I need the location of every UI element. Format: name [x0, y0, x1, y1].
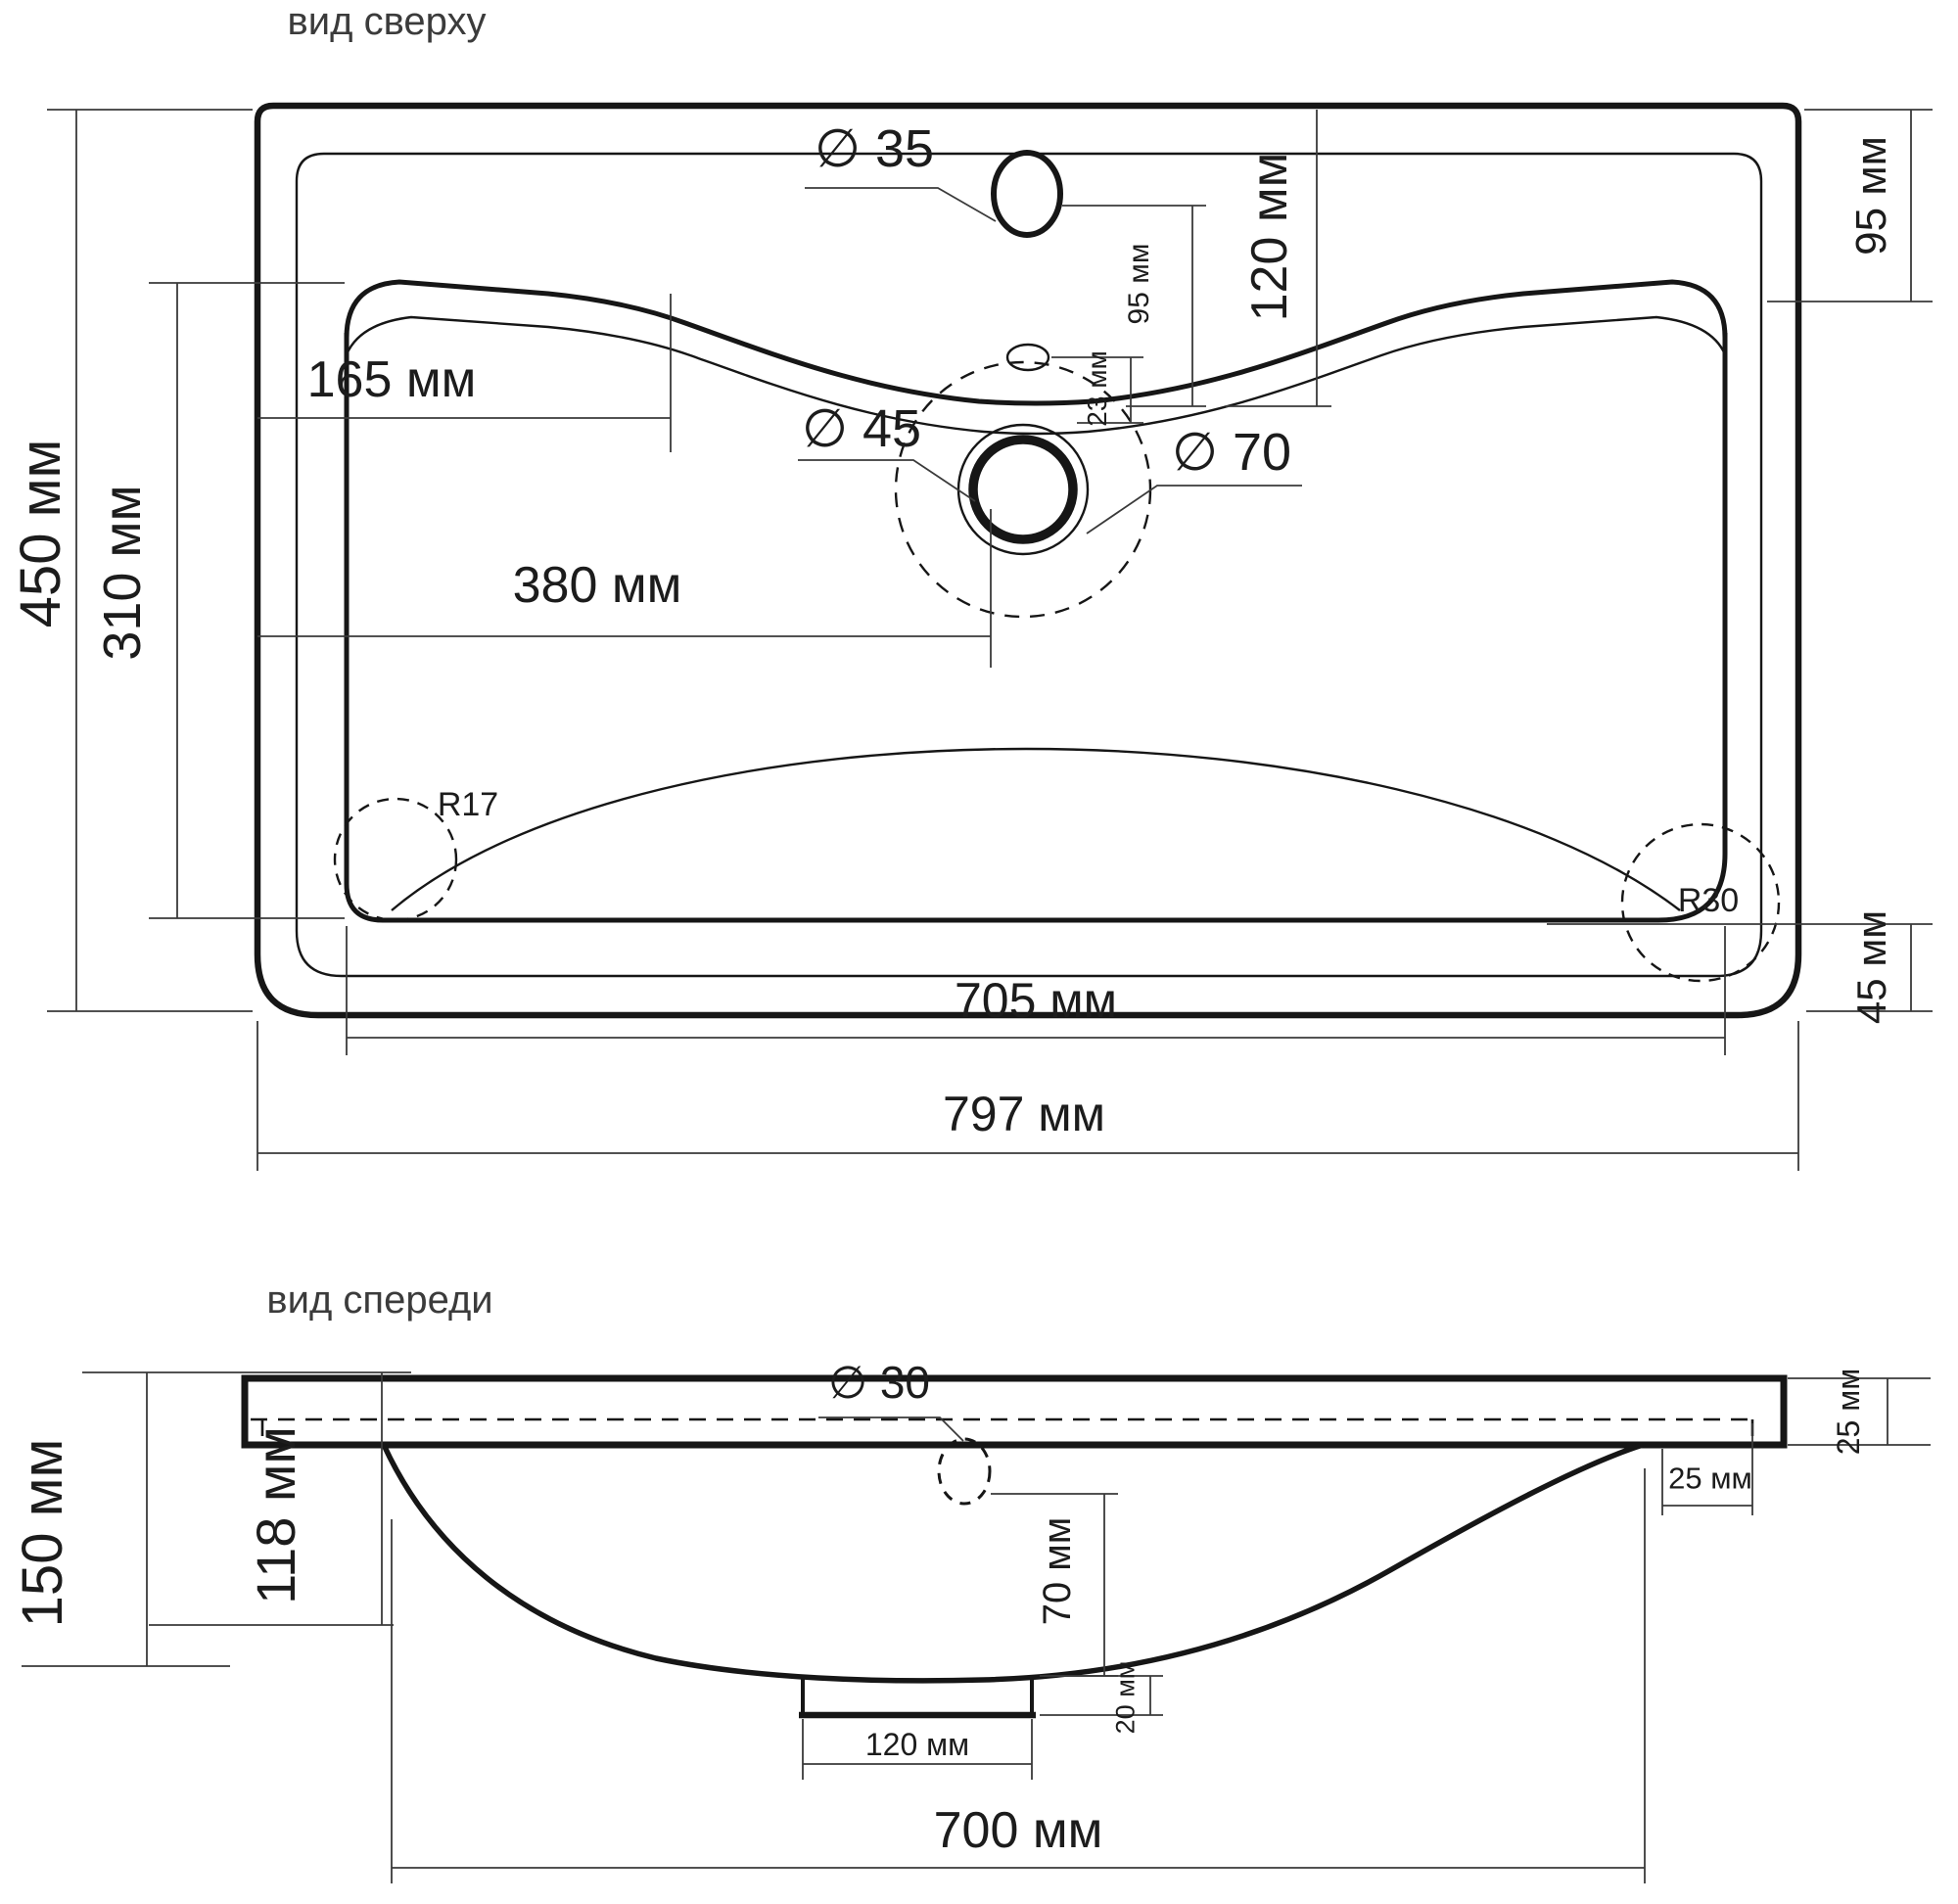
drawing-linework — [0, 0, 1958, 1904]
dim-label-overall-width: 797 мм — [943, 1090, 1105, 1138]
leader-dia45 — [798, 460, 975, 501]
dim-label-faucet-gap: 95 мм — [1125, 244, 1154, 325]
dim-label-right-ledge-depth: 95 мм — [1850, 136, 1893, 255]
dim-150-lines — [22, 1372, 411, 1666]
dim-label-edge-inset: 25 мм — [1668, 1463, 1752, 1494]
dim-label-drain-recess-dia: ∅ 70 — [1172, 426, 1291, 479]
dim-label-deck-depth: 120 мм — [1244, 153, 1295, 322]
dim-20-lines — [1040, 1676, 1163, 1715]
dim-label-overflow-hole-dia: ∅ 30 — [828, 1360, 930, 1405]
dim-label-drain-center-offset: 380 мм — [513, 560, 682, 611]
dim-label-drain-zone-height: 70 мм — [1038, 1517, 1077, 1626]
dim-label-overall-depth: 450 мм — [13, 440, 70, 628]
front-bowl-curve — [384, 1445, 1643, 1681]
front-hidden-dashed-line — [251, 1419, 1756, 1442]
dim-label-bowl-width: 700 мм — [934, 1805, 1103, 1856]
leader-dia35 — [805, 188, 996, 221]
dim-label-rim-bottom-gap: 45 мм — [1851, 910, 1892, 1024]
dim-label-left-corner-radius: R17 — [438, 788, 498, 821]
dim-label-overflow-offset: 23 мм — [1084, 350, 1111, 426]
top-basin-outline — [347, 333, 1725, 920]
drain-outer-circle — [958, 425, 1088, 554]
leader-dia30 — [818, 1417, 963, 1441]
front-view-title: вид спереди — [266, 1280, 492, 1320]
dim-label-stub-width: 120 мм — [865, 1729, 969, 1760]
dim-label-faucet-hole-dia: ∅ 35 — [815, 122, 934, 175]
dim-label-slab-thickness: 25 мм — [1833, 1369, 1864, 1455]
dim-label-overall-height: 150 мм — [15, 1439, 71, 1628]
dim-label-left-ledge-width: 165 мм — [307, 354, 477, 405]
top-outer-outline — [257, 106, 1798, 1015]
leader-dia70 — [1087, 486, 1302, 534]
dim-label-drain-hole-dia: ∅ 45 — [802, 402, 921, 455]
top-view-title: вид сверху — [288, 2, 487, 41]
overflow-hole-top — [1007, 345, 1049, 370]
dim-label-bowl-depth: 118 мм — [249, 1426, 303, 1604]
dim-label-stub-height: 20 мм — [1113, 1661, 1140, 1735]
top-front-wall-arc — [392, 749, 1680, 910]
dim-label-basin-depth: 310 мм — [96, 485, 149, 660]
sink-technical-drawing: вид сверху 450 мм 310 мм 165 мм 380 мм ∅… — [0, 0, 1958, 1904]
top-basin-slope-line — [347, 317, 1725, 434]
top-basin-back-edge — [347, 282, 1725, 403]
overflow-hole-front-dashed — [939, 1439, 990, 1504]
front-slab-outline — [245, 1378, 1784, 1445]
drain-ring — [973, 440, 1073, 539]
dim-label-right-corner-radius: R30 — [1678, 884, 1739, 917]
dim-label-basin-width: 705 мм — [955, 976, 1117, 1025]
faucet-hole — [994, 153, 1060, 235]
